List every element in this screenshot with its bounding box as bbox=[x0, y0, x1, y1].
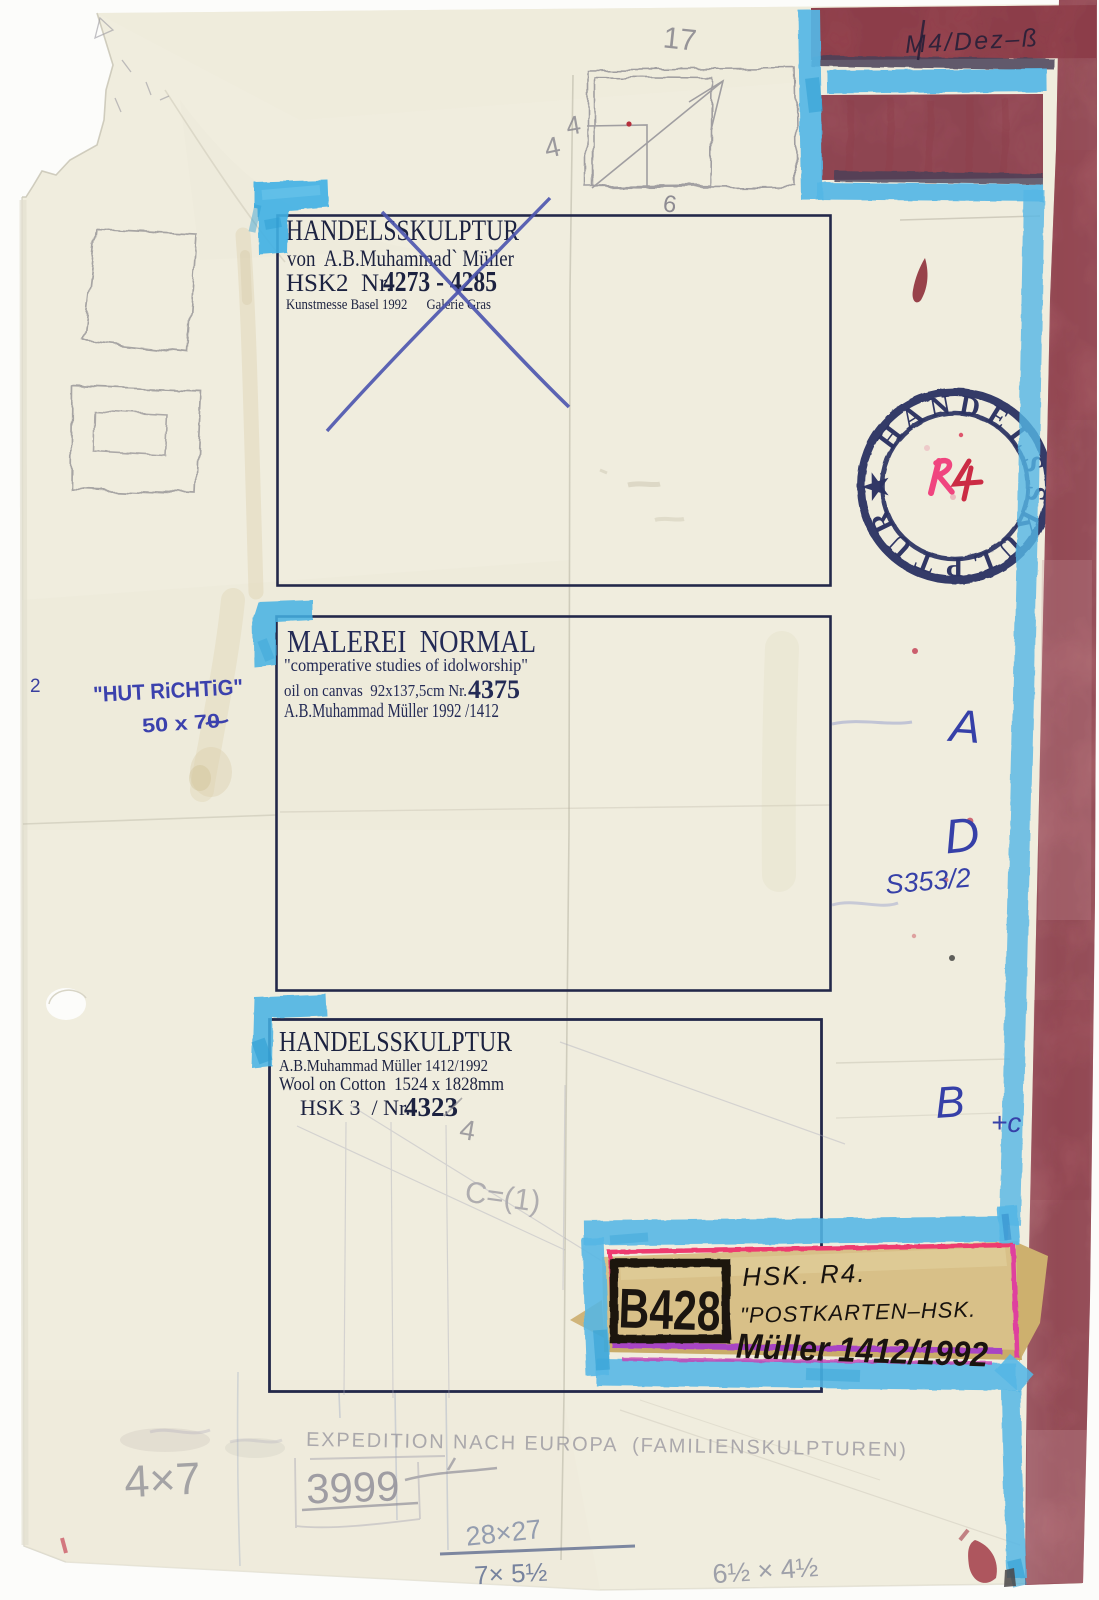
svg-text:"comperative studies of idolwo: "comperative studies of idolworship" bbox=[284, 655, 528, 675]
svg-text:A: A bbox=[945, 699, 982, 753]
svg-text:D: D bbox=[942, 808, 982, 864]
svg-text:A.B.Muhammad Müller 1992 /1412: A.B.Muhammad Müller 1992 /1412 bbox=[284, 700, 499, 722]
svg-text:A.B.Muhammad Müller 1412/1992: A.B.Muhammad Müller 1412/1992 bbox=[279, 1056, 488, 1075]
svg-text:P: P bbox=[946, 551, 963, 582]
svg-text:MALEREI NORMAL: MALEREI NORMAL bbox=[287, 623, 536, 659]
svg-text:Wool on Cotton 1524 x 1828mm: Wool on Cotton 1524 x 1828mm bbox=[279, 1074, 504, 1095]
svg-text:7× 5½: 7× 5½ bbox=[473, 1557, 547, 1591]
svg-text:2: 2 bbox=[30, 676, 41, 697]
svg-text:HANDELSSKULPTUR: HANDELSSKULPTUR bbox=[279, 1026, 513, 1058]
svg-text:17: 17 bbox=[661, 21, 698, 57]
svg-text:B: B bbox=[934, 1077, 967, 1128]
svg-text:4×7: 4×7 bbox=[123, 1452, 202, 1507]
svg-text:4323: 4323 bbox=[404, 1092, 458, 1122]
svg-text:HSK. R4.: HSK. R4. bbox=[742, 1258, 867, 1292]
svg-text:B428: B428 bbox=[618, 1276, 722, 1343]
svg-text:+c: +c bbox=[991, 1107, 1021, 1138]
svg-text:oil on canvas 92x137,5cm Nr.: oil on canvas 92x137,5cm Nr. bbox=[284, 681, 467, 700]
svg-text:★: ★ bbox=[859, 471, 895, 501]
svg-text:HSK2 Nr.: HSK2 Nr. bbox=[286, 270, 399, 297]
svg-text:Kunstmesse Basel 1992 Gal: Kunstmesse Basel 1992 Galerie Gras bbox=[286, 297, 491, 313]
